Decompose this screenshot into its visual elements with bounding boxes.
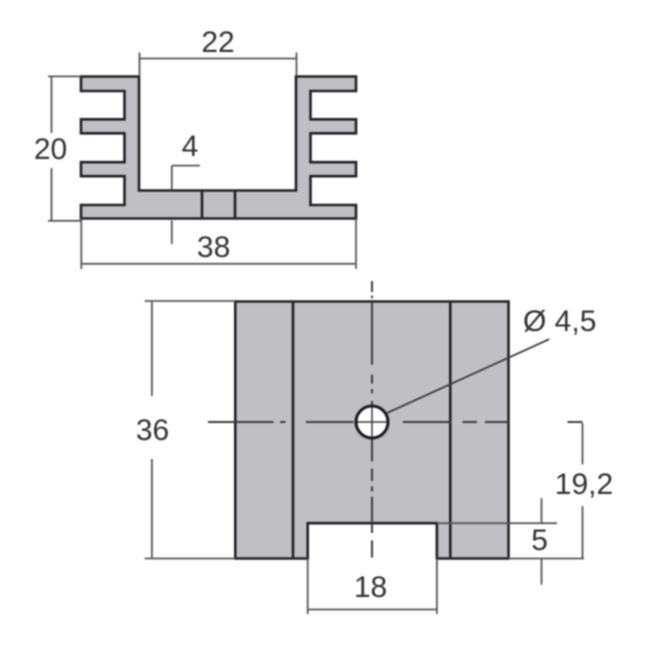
svg-text:22: 22 [201, 26, 234, 59]
svg-text:4: 4 [182, 130, 199, 163]
svg-text:19,2: 19,2 [555, 468, 613, 501]
svg-text:18: 18 [354, 571, 387, 604]
svg-text:20: 20 [34, 133, 67, 166]
svg-text:5: 5 [531, 524, 548, 557]
svg-text:Ø 4,5: Ø 4,5 [523, 305, 596, 338]
svg-text:38: 38 [197, 231, 230, 264]
svg-text:36: 36 [136, 414, 169, 447]
